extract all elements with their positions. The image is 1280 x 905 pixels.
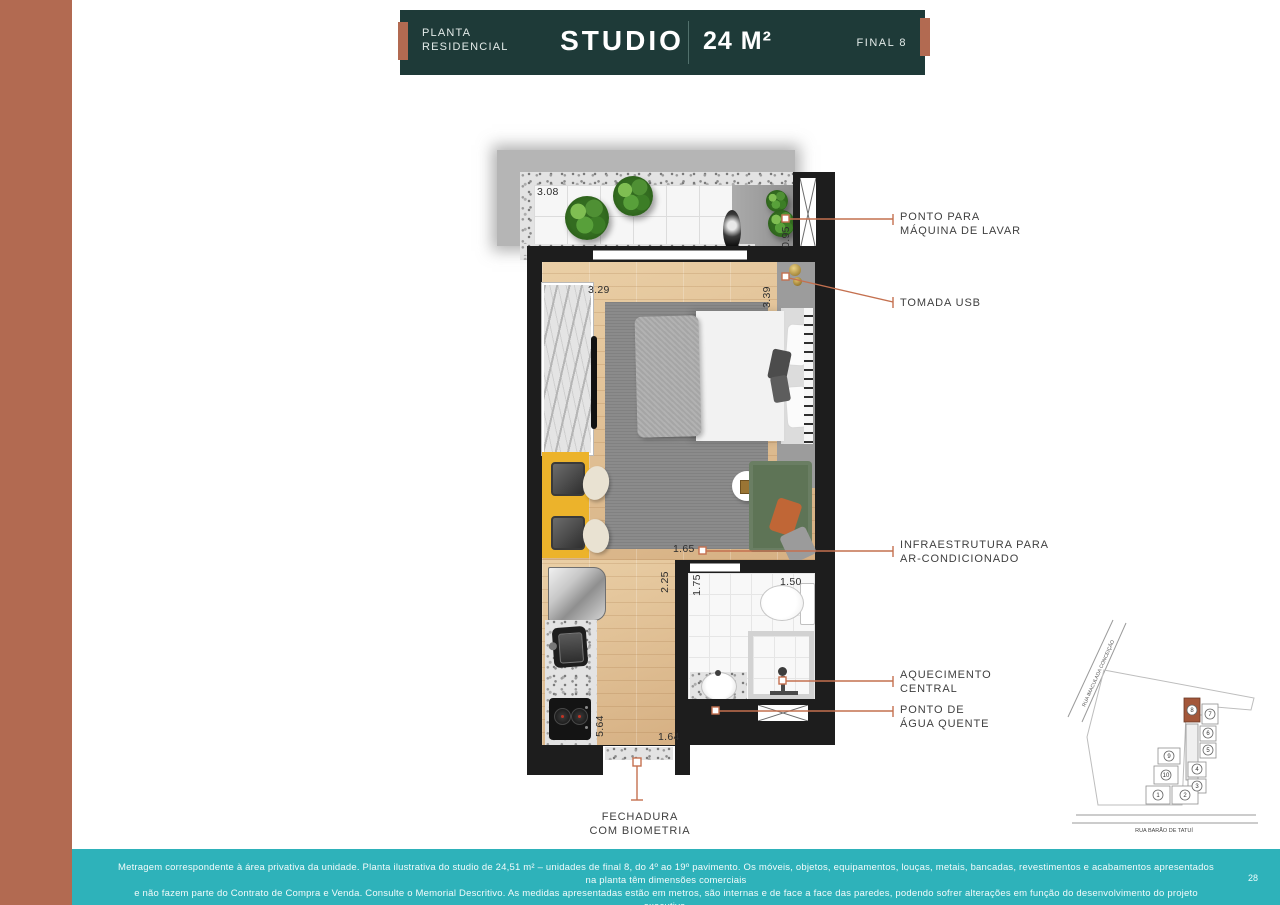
balcony-wall-top — [520, 172, 823, 185]
shower-head-icon — [778, 667, 787, 676]
page-number: 28 — [1248, 873, 1258, 883]
bed-blanket — [634, 315, 701, 438]
wall-left — [527, 248, 542, 775]
header-right-tab — [920, 18, 930, 56]
callout-washing-machine: PONTO PARAMÁQUINA DE LAVAR — [900, 210, 1021, 238]
header-left-tab — [398, 22, 408, 60]
dim-balcony-width: 3.08 — [537, 186, 559, 198]
plant-large-icon — [565, 196, 609, 240]
dim-hall-depth: 2.25 — [659, 565, 671, 599]
dim-bath-depth: 1.75 — [691, 568, 703, 602]
stool — [551, 516, 585, 550]
plan-header: PLANTA RESIDENCIAL STUDIO 24 M² FINAL 8 — [400, 10, 925, 75]
bath-faucet-icon — [715, 670, 721, 676]
street-bottom-label: RUA BARÃO DE TATUÍ — [1135, 827, 1193, 834]
callout-central-heating: AQUECIMENTOCENTRAL — [900, 668, 992, 696]
unit-final: FINAL 8 — [857, 37, 907, 49]
washing-machine-slot — [800, 178, 816, 250]
balcony-sliding-door — [593, 250, 747, 260]
usb-socket-icon — [789, 264, 801, 276]
burner-icon — [571, 708, 588, 725]
entry-threshold — [605, 747, 673, 760]
dim-entry-width: 1.64 — [658, 731, 680, 743]
dim-bedroom-width: 3.29 — [588, 284, 610, 296]
cooktop — [549, 698, 591, 740]
bath-basin — [701, 672, 737, 701]
water-heater-slot — [758, 705, 808, 721]
location-minimap: RUA IMACULADA CONCEIÇÃO RUA BARÃO DE TAT… — [1058, 612, 1263, 837]
callout-ac-infra: INFRAESTRUTURA PARAAR-CONDICIONADO — [900, 538, 1049, 566]
burner-icon — [554, 708, 571, 725]
plant-small-icon — [766, 190, 788, 212]
sink-basin — [558, 632, 584, 664]
kitchen-sink — [552, 626, 589, 668]
header-divider — [688, 21, 689, 64]
header-eyebrow: PLANTA RESIDENCIAL — [422, 26, 537, 54]
wall-right — [815, 258, 835, 745]
shower-mixer-icon — [770, 691, 798, 695]
fridge — [548, 567, 606, 621]
tv — [591, 336, 597, 429]
plant-large-icon — [613, 176, 653, 216]
floor-plan: 3.08 0.95 3.29 3.39 1.65 2.25 1.75 1.50 … — [490, 140, 860, 780]
dim-bedroom-depth: 3.39 — [761, 280, 773, 314]
dim-kitchen-depth: 5.64 — [594, 709, 606, 743]
dim-ac-span: 1.65 — [673, 543, 695, 555]
balcony-sink — [723, 210, 741, 251]
bed — [636, 308, 813, 444]
page-title: STUDIO — [547, 25, 697, 57]
dim-laundry-depth: 0.95 — [780, 220, 792, 254]
callout-hot-water: PONTO DEÁGUA QUENTE — [900, 703, 989, 731]
headboard — [804, 308, 813, 444]
wardrobe — [542, 283, 593, 455]
stool — [551, 462, 585, 496]
left-accent-bar — [0, 0, 72, 905]
callout-biometric-lock: FECHADURACOM BIOMETRIA — [565, 810, 715, 838]
toilet-bowl — [760, 585, 804, 621]
usb-socket-icon — [793, 277, 802, 286]
footer-disclaimer: Metragem correspondente à área privativa… — [112, 861, 1220, 905]
svg-text:10: 10 — [1163, 773, 1170, 779]
unit-area: 24 M² — [703, 27, 772, 56]
callout-usb-outlet: TOMADA USB — [900, 296, 981, 310]
brochure-page: PLANTA RESIDENCIAL STUDIO 24 M² FINAL 8 — [0, 0, 1280, 905]
faucet-icon — [549, 642, 558, 651]
street-left-label: RUA IMACULADA CONCEIÇÃO — [1080, 639, 1116, 708]
dim-bath-width: 1.50 — [780, 576, 802, 588]
footer-bar: Metragem correspondente à área privativa… — [72, 849, 1280, 905]
